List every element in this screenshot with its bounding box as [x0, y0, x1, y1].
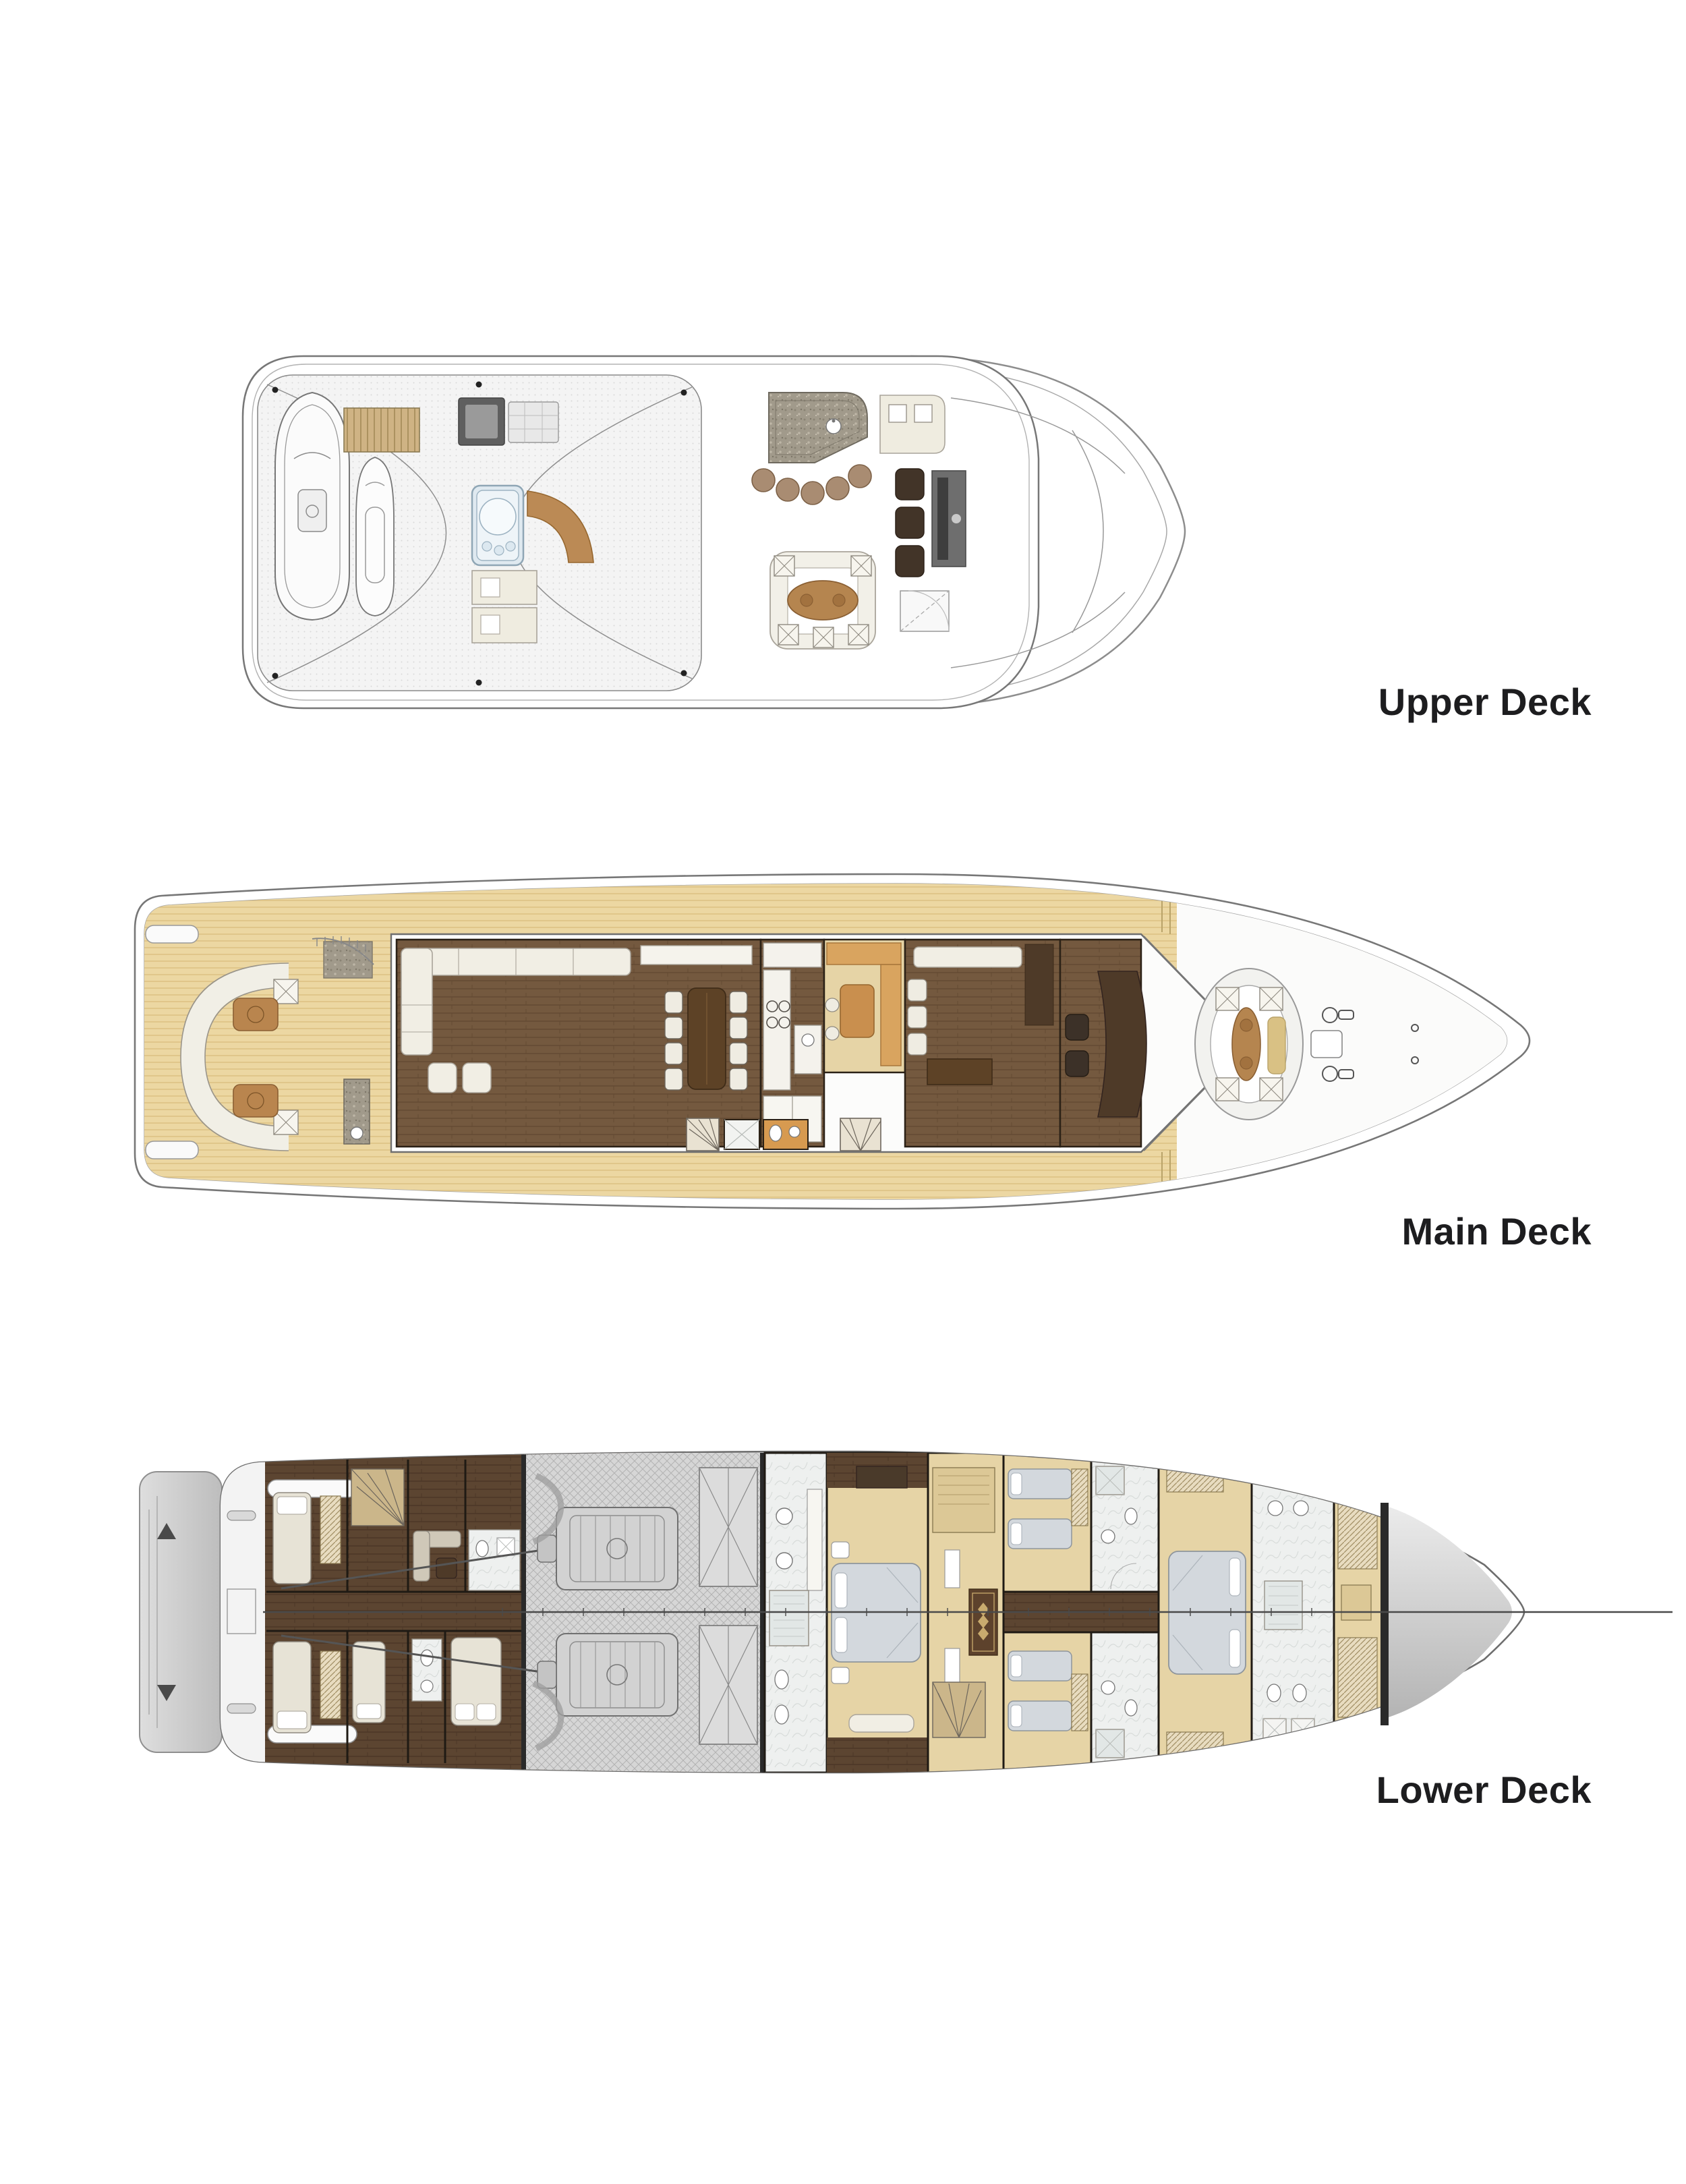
breakfast-nook — [824, 940, 905, 1072]
shower-room — [724, 1120, 759, 1149]
stairs-down-forward — [840, 1118, 881, 1151]
lower-deck-plan — [125, 1429, 1686, 1796]
salon-wet-bar — [344, 1079, 370, 1144]
guest-cabin-starboard — [1004, 1632, 1091, 1771]
crew-stairs — [351, 1469, 404, 1526]
jet-ski — [356, 457, 394, 616]
galley — [761, 940, 824, 1147]
guest-bath-port — [1091, 1453, 1159, 1592]
main-deck-plan — [121, 863, 1551, 1221]
alfresco-dining — [770, 552, 875, 649]
dining-table — [688, 988, 726, 1089]
bow-table — [1232, 1008, 1260, 1081]
console-panel — [880, 395, 945, 453]
bow-seating — [1195, 969, 1303, 1120]
vanity-desk — [933, 1468, 995, 1532]
main-deck-figure — [121, 863, 1551, 1221]
tv-cabinet — [932, 471, 966, 567]
upper-deck-figure — [236, 351, 1200, 715]
swim-platform — [140, 1472, 222, 1752]
salon-sideboard — [641, 946, 752, 965]
lower-deck-label: Lower Deck — [1376, 1771, 1592, 1809]
deck-hatch — [508, 402, 558, 442]
teak-stairs — [344, 408, 419, 452]
jacuzzi — [472, 486, 523, 565]
upper-deck-label: Upper Deck — [1378, 683, 1592, 721]
salon — [344, 940, 761, 1147]
sun-pad — [1268, 1017, 1285, 1074]
office-lobby — [905, 940, 1060, 1147]
wardrobe — [1025, 944, 1053, 1025]
desk — [927, 1059, 992, 1085]
stairs-down — [687, 1118, 719, 1151]
yacht-deck-plans-page: Upper Deck — [0, 0, 1686, 2184]
foot-bench — [849, 1715, 914, 1732]
day-head — [763, 1120, 808, 1149]
lower-deck-figure — [125, 1429, 1686, 1796]
tender-boat — [275, 393, 349, 620]
guest-bath-starboard — [1091, 1632, 1159, 1771]
main-deck-label: Main Deck — [1402, 1213, 1592, 1251]
grill-unit — [459, 398, 504, 445]
transom-machinery — [221, 1456, 265, 1773]
stair-opening — [900, 591, 949, 631]
collision-bulkhead — [1380, 1503, 1389, 1725]
lounge-chairs — [896, 469, 924, 577]
guest-cabin-port — [1004, 1453, 1091, 1592]
captain-cabin — [451, 1638, 501, 1725]
crew-bath-lower — [412, 1639, 442, 1701]
master-tv-cabinet — [856, 1466, 907, 1488]
upper-deck-plan — [236, 351, 1200, 715]
runner-rug — [969, 1589, 997, 1655]
lobby-stairs — [933, 1682, 985, 1737]
